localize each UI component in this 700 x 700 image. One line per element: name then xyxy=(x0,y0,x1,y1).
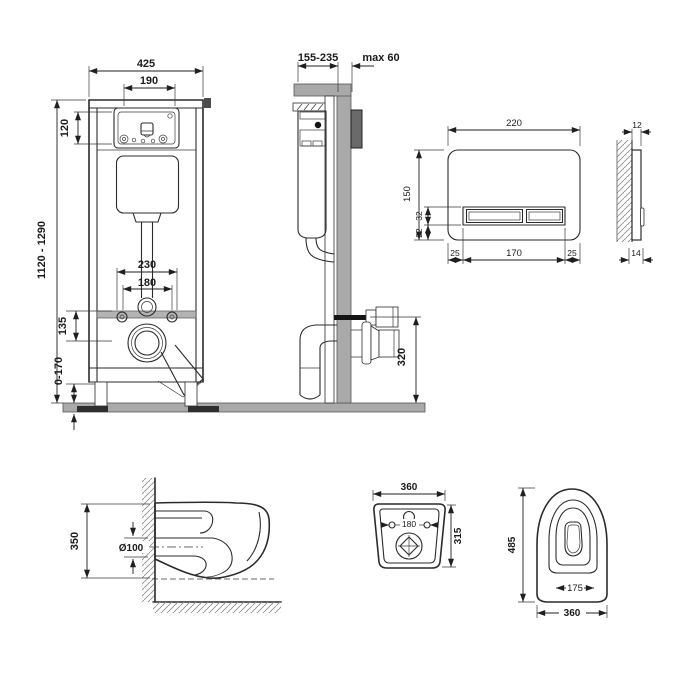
dim-cutout-width: 190 xyxy=(140,75,158,87)
wall-hatch-bowl xyxy=(142,478,155,602)
dim-thickness-bottom: 14 xyxy=(631,248,641,258)
dim-plate-width: 220 xyxy=(506,118,522,129)
dim-button-height: 32 xyxy=(414,211,424,221)
cistern-neck xyxy=(133,213,161,222)
dim-bowl-height: 350 xyxy=(69,532,81,550)
bowl-plan-dimensions: 485 175 360 xyxy=(507,488,607,619)
floor-hatch xyxy=(153,602,281,613)
bowl-profile xyxy=(155,502,269,578)
small-flush-button xyxy=(527,210,563,223)
dim-cutout-height: 120 xyxy=(59,119,71,137)
trap-curve xyxy=(213,538,232,573)
flush-plate-body xyxy=(448,150,580,240)
leg-right xyxy=(185,382,197,406)
flush-distributor xyxy=(565,522,582,556)
cistern-tank xyxy=(117,156,179,213)
dim-height-range: 1120 - 1290 xyxy=(36,221,48,279)
dim-plan-width: 360 xyxy=(564,608,581,619)
dim-stud-spacing: 180 xyxy=(138,277,156,289)
dim-button-bottom-offset: 22 xyxy=(414,228,424,238)
lower-crossbar xyxy=(89,368,203,382)
floor-slab xyxy=(63,403,425,412)
dim-rear-width: 360 xyxy=(401,482,418,493)
flush-plate-front-view: 220 150 32 22 25 170 25 xyxy=(402,118,580,264)
filling-valve xyxy=(141,123,153,135)
frame-side-view: 155-235 max 60 320 xyxy=(293,52,421,403)
frame-front-view: 425 190 120 1120 - 1290 230 180 135 0-17… xyxy=(36,58,219,430)
dim-plate-height: 150 xyxy=(402,186,413,202)
dim-seat-span: 175 xyxy=(567,583,583,594)
dim-thickness-top: 12 xyxy=(632,120,642,130)
foot-plate-left xyxy=(77,406,108,412)
bowl-side-dimensions: 350 Ø100 xyxy=(69,504,150,578)
dim-fixing-span: 230 xyxy=(138,259,156,271)
dim-outlet-height: 320 xyxy=(396,348,408,366)
dim-rear-stud-spacing: 180 xyxy=(402,519,416,529)
bowl-rear-outline xyxy=(374,504,445,568)
dim-leg-adjustment: 0-170 xyxy=(53,357,65,385)
technical-drawing-sheet: 425 190 120 1120 - 1290 230 180 135 0-17… xyxy=(0,0,700,700)
wall-bracket xyxy=(293,103,325,111)
button-bump xyxy=(641,208,645,226)
dim-frame-width: 425 xyxy=(137,58,155,70)
flush-plate-dimensions: 220 150 32 22 25 170 25 xyxy=(402,118,580,264)
frame-clip xyxy=(204,98,211,108)
flush-plate-on-wall xyxy=(351,110,362,148)
leg-left xyxy=(95,382,107,406)
dim-rear-height: 315 xyxy=(453,527,464,544)
dim-outlet-diameter: Ø100 xyxy=(119,543,144,554)
dim-drain-offset: 135 xyxy=(57,317,69,335)
bowl-plan-view: 485 175 360 xyxy=(507,488,607,619)
mounting-rail xyxy=(97,311,196,318)
dim-wall-thickness: max 60 xyxy=(362,52,399,64)
foot-plate-right xyxy=(188,406,219,412)
installation-drawing: 425 190 120 1120 - 1290 230 180 135 0-17… xyxy=(0,0,700,700)
wall-top-section xyxy=(294,84,351,96)
rim-flush-channel xyxy=(155,511,205,518)
bowl-side-view: 350 Ø100 xyxy=(69,478,281,613)
dim-right-margin: 25 xyxy=(567,248,577,258)
flush-plate-side-view: 12 14 xyxy=(617,120,653,264)
stud-hole-right xyxy=(424,522,430,528)
stud-hole-left xyxy=(389,522,395,528)
cistern-access-box xyxy=(114,108,179,148)
cistern-side-profile xyxy=(298,111,326,238)
dim-plan-depth: 485 xyxy=(507,536,518,553)
dim-depth-range: 155-235 xyxy=(298,52,338,64)
flush-actuator-rod xyxy=(315,122,321,128)
wall-hatch xyxy=(617,140,632,242)
outlet-hole xyxy=(396,533,422,559)
plate-profile xyxy=(632,150,641,240)
bowl-inner-wall xyxy=(247,512,260,561)
bowl-rear-view: 180 360 315 xyxy=(373,482,464,568)
dim-left-margin: 25 xyxy=(450,248,460,258)
floor-surface xyxy=(63,403,425,412)
big-flush-button xyxy=(467,210,523,223)
dim-button-span: 170 xyxy=(506,248,522,259)
frame-front-dimensions: 425 190 120 1120 - 1290 230 180 135 0-17… xyxy=(36,58,203,430)
finished-wall xyxy=(337,95,351,403)
